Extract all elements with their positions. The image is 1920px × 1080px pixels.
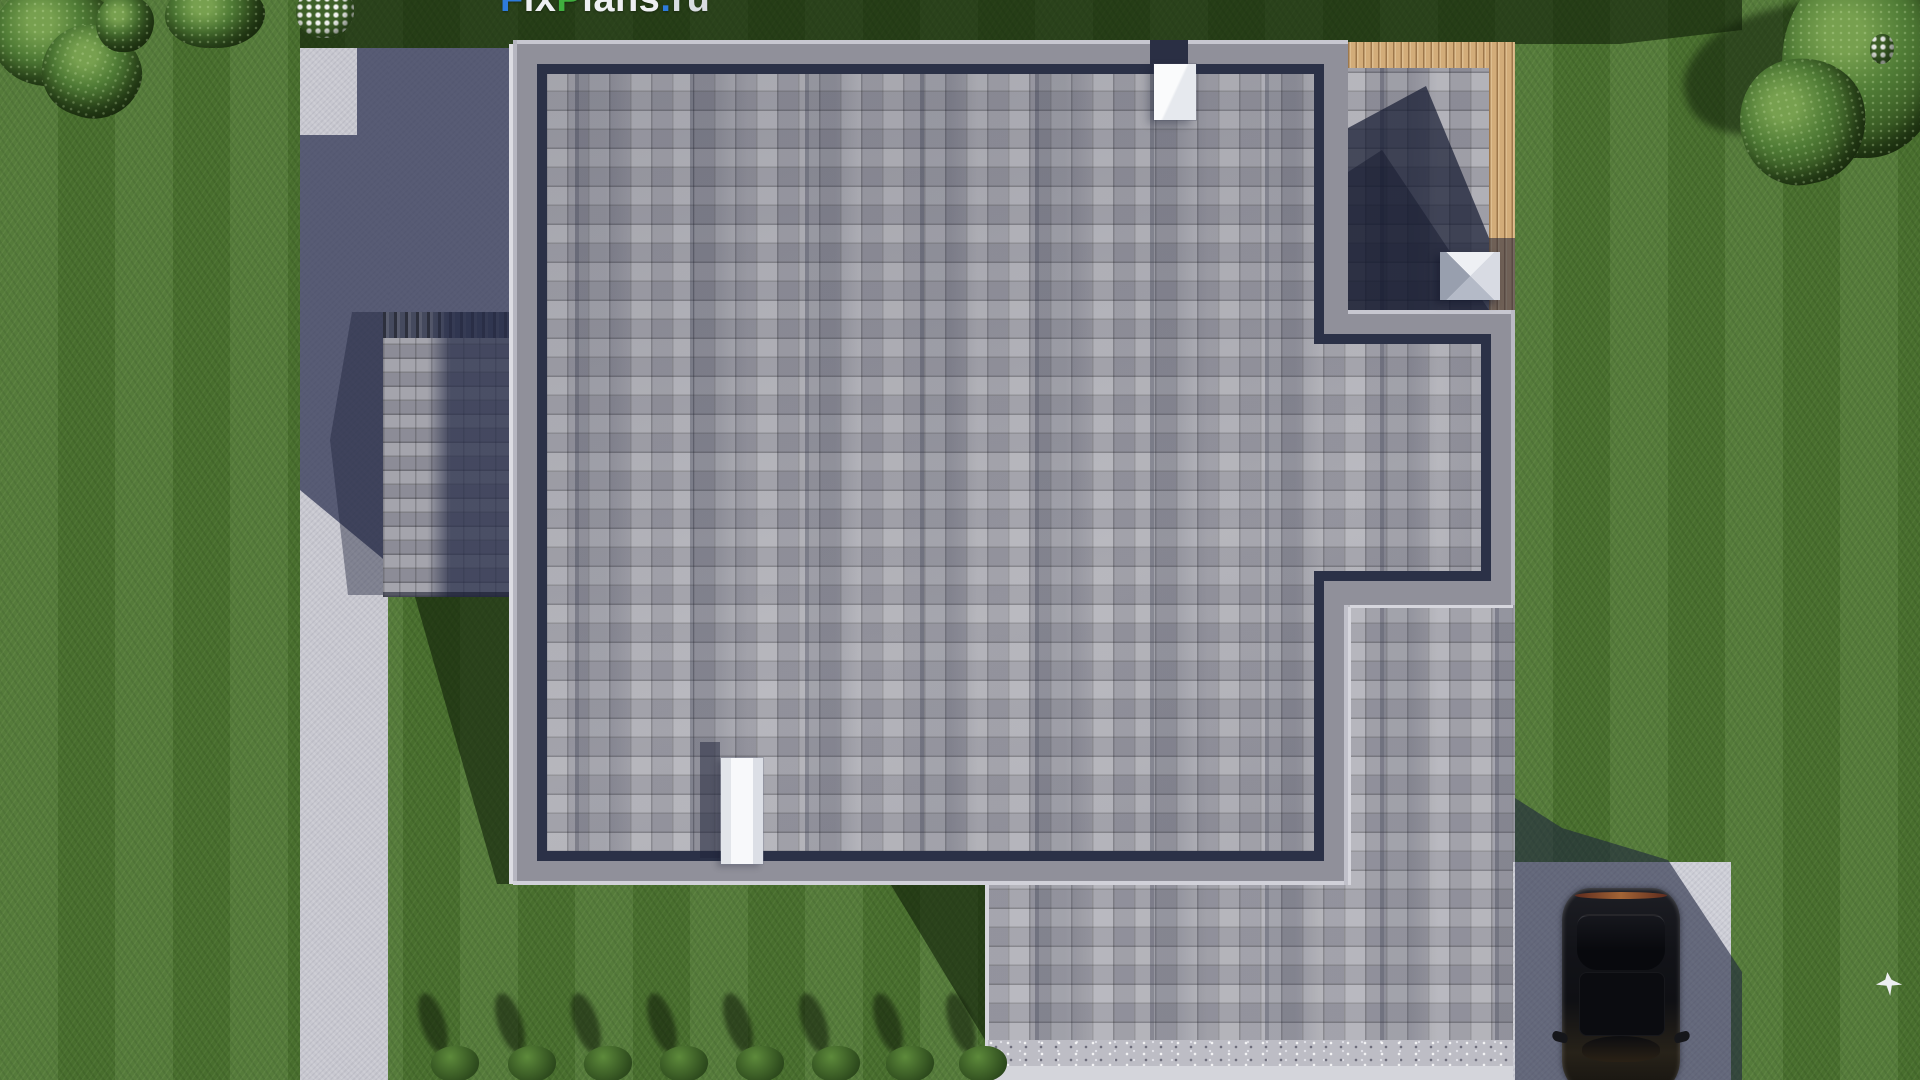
aerial-house-render: FixPlans.ru bbox=[0, 0, 1920, 1080]
bush-row-bottom bbox=[0, 0, 1920, 1080]
bush bbox=[812, 1046, 860, 1080]
bush bbox=[508, 1046, 556, 1080]
bush bbox=[959, 1046, 1007, 1080]
bush bbox=[736, 1046, 784, 1080]
watermark-segment: F bbox=[500, 0, 524, 20]
bush bbox=[431, 1046, 479, 1080]
watermark-segment: . bbox=[660, 0, 671, 20]
watermark-segment: ix bbox=[524, 0, 557, 20]
bush bbox=[584, 1046, 632, 1080]
bush bbox=[660, 1046, 708, 1080]
watermark-segment: ru bbox=[671, 0, 710, 20]
bush bbox=[886, 1046, 934, 1080]
watermark-segment: P bbox=[556, 0, 582, 20]
watermark-segment: lans bbox=[582, 0, 660, 20]
watermark-logo: FixPlans.ru bbox=[500, 0, 710, 21]
